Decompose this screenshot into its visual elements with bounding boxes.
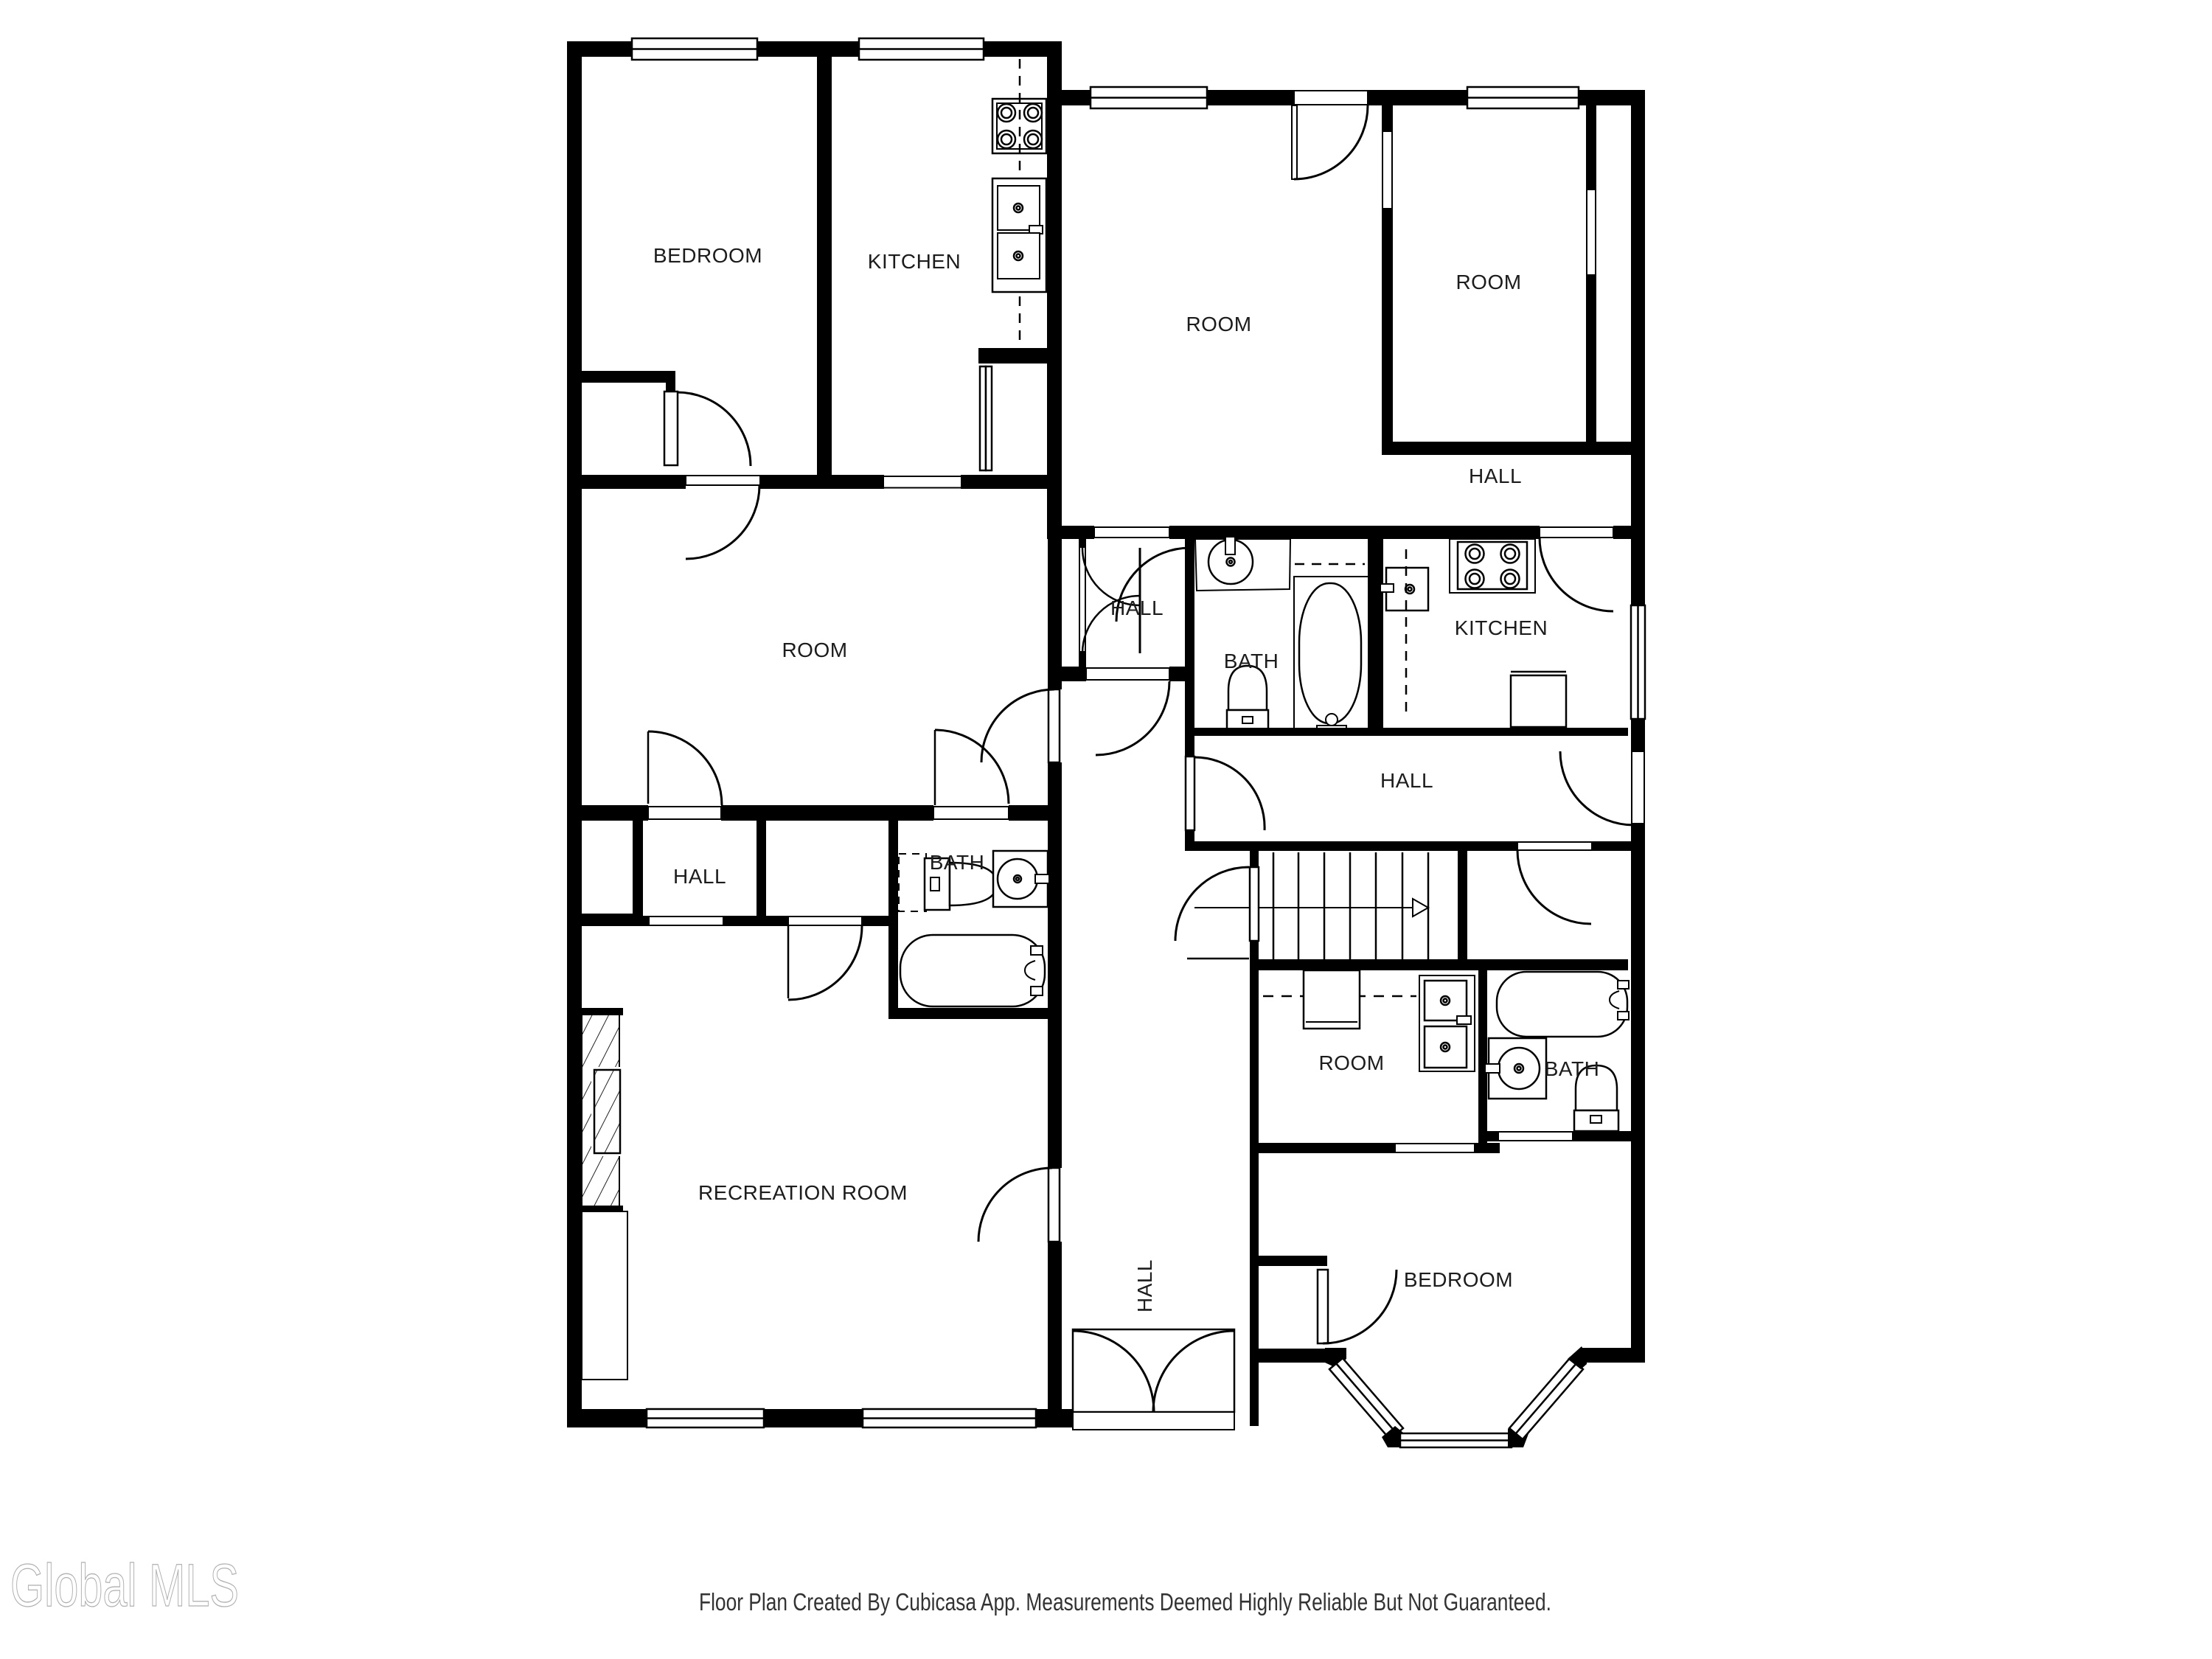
svg-text:HALL: HALL (1110, 597, 1164, 619)
svg-text:ROOM: ROOM (1318, 1051, 1384, 1074)
svg-text:RECREATION ROOM: RECREATION ROOM (698, 1181, 908, 1204)
svg-text:BATH: BATH (1224, 650, 1279, 672)
svg-text:HALL: HALL (1133, 1259, 1156, 1312)
svg-text:BEDROOM: BEDROOM (1404, 1268, 1513, 1291)
svg-text:Floor Plan Created By Cubicasa: Floor Plan Created By Cubicasa App. Meas… (699, 1588, 1551, 1615)
svg-text:BATH: BATH (1545, 1057, 1600, 1080)
svg-text:ROOM: ROOM (782, 639, 847, 661)
svg-text:ROOM: ROOM (1186, 313, 1251, 335)
svg-text:ROOM: ROOM (1455, 271, 1521, 293)
svg-text:BEDROOM: BEDROOM (653, 244, 762, 267)
svg-text:KITCHEN: KITCHEN (868, 250, 961, 273)
svg-text:HALL: HALL (1380, 769, 1433, 792)
svg-text:Global MLS: Global MLS (10, 1552, 239, 1619)
svg-text:KITCHEN: KITCHEN (1455, 616, 1548, 639)
svg-text:HALL: HALL (673, 865, 726, 888)
svg-text:HALL: HALL (1469, 465, 1522, 487)
svg-text:BATH: BATH (930, 851, 985, 874)
